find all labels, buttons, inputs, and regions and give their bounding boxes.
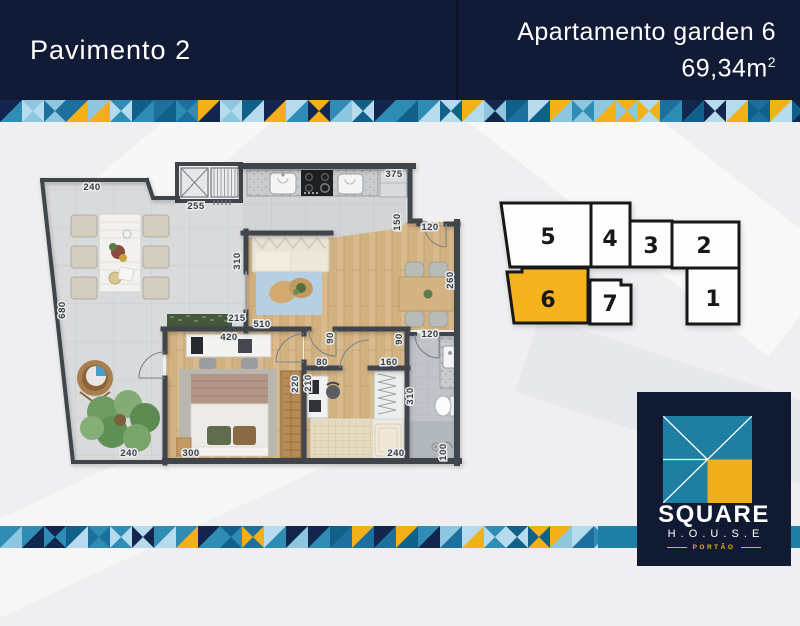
living-sofa: [252, 236, 329, 272]
kitchen-counter: [247, 170, 407, 197]
svg-text:120: 120: [421, 329, 438, 340]
apartment-area: 69,34m2: [681, 47, 776, 83]
svg-text:240: 240: [120, 448, 137, 459]
ribbon-left: [598, 526, 637, 548]
svg-text:90: 90: [325, 332, 336, 344]
floor-title: Pavimento 2: [30, 0, 191, 100]
logo-mark-icon: [663, 416, 752, 503]
svg-text:310: 310: [232, 252, 243, 269]
cooktop: [301, 170, 333, 196]
svg-text:150: 150: [392, 213, 403, 230]
mosaic-strip-top: [0, 100, 800, 122]
svg-text:90: 90: [394, 333, 405, 345]
svg-text:120: 120: [421, 222, 438, 233]
svg-text:680: 680: [57, 301, 68, 318]
ribbon-right: [791, 526, 800, 548]
svg-text:6: 6: [540, 288, 555, 313]
svg-text:160: 160: [380, 357, 397, 368]
svg-text:215: 215: [228, 313, 246, 324]
svg-text:210: 210: [303, 374, 314, 391]
logo-brand-text: SQUARE: [637, 501, 791, 529]
tagline-text: PORTÃO: [693, 544, 736, 551]
svg-text:310: 310: [405, 387, 416, 404]
svg-text:375: 375: [385, 169, 403, 180]
header-bar: Pavimento 2 Apartamento garden 6 69,34m2: [0, 0, 800, 100]
svg-text:80: 80: [316, 357, 328, 368]
svg-text:2: 2: [696, 234, 711, 259]
svg-text:5: 5: [540, 225, 555, 250]
svg-text:7: 7: [602, 292, 617, 317]
tagline-line-left: [667, 547, 687, 548]
svg-text:260: 260: [445, 271, 456, 288]
unit-locator-keyplan: 5432671: [495, 195, 750, 340]
svg-text:3: 3: [643, 234, 658, 259]
logo-tagline: PORTÃO: [637, 544, 791, 551]
svg-text:240: 240: [387, 448, 404, 459]
terrace-dining-set: [71, 214, 169, 299]
svg-text:4: 4: [602, 227, 617, 252]
svg-text:220: 220: [290, 375, 301, 392]
svg-text:255: 255: [187, 201, 205, 212]
svg-text:510: 510: [253, 319, 270, 330]
tagline-line-right: [741, 547, 761, 548]
page: { "header": { "left_title": "Pavimento 2…: [0, 0, 800, 566]
square-house-logo: SQUARE H . O . U . S . E PORTÃO: [637, 392, 791, 566]
svg-text:300: 300: [182, 448, 199, 459]
elevator-stairs-core: [177, 164, 241, 205]
apartment-title-block: Apartamento garden 6 69,34m2: [517, 0, 776, 100]
svg-text:240: 240: [83, 182, 100, 193]
svg-text:420: 420: [220, 332, 237, 343]
svg-text:100: 100: [438, 443, 449, 460]
area-superscript: 2: [768, 54, 776, 70]
floor-plan: 2402553751501202603102155109090420801602…: [30, 145, 480, 475]
planter-box: [167, 314, 232, 327]
logo-house-text: H . O . U . S . E: [637, 528, 791, 540]
apartment-title: Apartamento garden 6: [517, 17, 776, 47]
header-divider: [456, 0, 458, 100]
svg-text:1: 1: [705, 287, 720, 312]
